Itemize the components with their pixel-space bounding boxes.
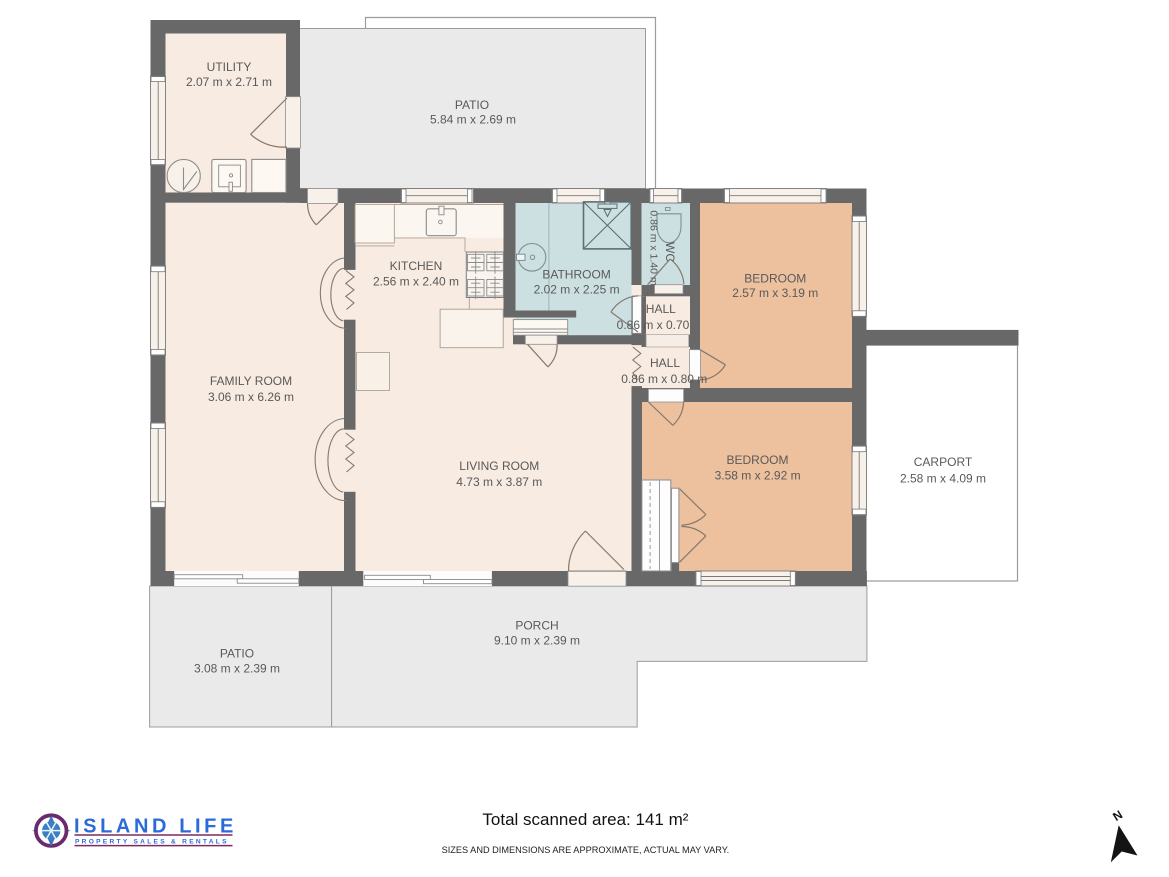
svg-text:LIVING ROOM: LIVING ROOM bbox=[459, 459, 539, 473]
svg-text:0.86 m x 0.70: 0.86 m x 0.70 bbox=[617, 318, 690, 332]
svg-text:2.57 m x 3.19 m: 2.57 m x 3.19 m bbox=[732, 286, 818, 300]
svg-text:HALL: HALL bbox=[650, 356, 680, 370]
svg-text:3.58 m x 2.92 m: 3.58 m x 2.92 m bbox=[715, 469, 801, 483]
svg-text:0.86 m x 0.80 m: 0.86 m x 0.80 m bbox=[621, 372, 707, 386]
svg-text:2.56 m x 2.40 m: 2.56 m x 2.40 m bbox=[373, 275, 459, 289]
svg-text:5.84 m x 2.69 m: 5.84 m x 2.69 m bbox=[430, 113, 516, 127]
svg-text:2.07 m x 2.71 m: 2.07 m x 2.71 m bbox=[186, 75, 272, 89]
svg-text:WC: WC bbox=[663, 242, 677, 262]
svg-text:PROPERTY SALES & RENTALS: PROPERTY SALES & RENTALS bbox=[75, 838, 229, 845]
svg-text:2.58 m x 4.09 m: 2.58 m x 4.09 m bbox=[900, 472, 986, 486]
svg-text:PATIO: PATIO bbox=[220, 647, 254, 661]
svg-text:SIZES AND DIMENSIONS ARE APPRO: SIZES AND DIMENSIONS ARE APPROXIMATE, AC… bbox=[442, 845, 730, 855]
svg-text:HALL: HALL bbox=[646, 302, 676, 316]
svg-text:4.73 m x 3.87 m: 4.73 m x 3.87 m bbox=[456, 475, 542, 489]
svg-text:KITCHEN: KITCHEN bbox=[390, 259, 443, 273]
svg-text:UTILITY: UTILITY bbox=[207, 60, 252, 74]
svg-text:2.02 m x 2.25 m: 2.02 m x 2.25 m bbox=[534, 282, 620, 296]
svg-text:BEDROOM: BEDROOM bbox=[726, 453, 788, 467]
svg-text:3.08 m x 2.39 m: 3.08 m x 2.39 m bbox=[194, 662, 280, 676]
svg-text:0.86 m x 1.40 m: 0.86 m x 1.40 m bbox=[648, 210, 660, 286]
svg-text:PORCH: PORCH bbox=[515, 619, 558, 633]
svg-text:ISLAND LIFE: ISLAND LIFE bbox=[74, 816, 237, 838]
svg-text:9.10 m x 2.39 m: 9.10 m x 2.39 m bbox=[494, 634, 580, 648]
svg-text:Total scanned area: 141 m²: Total scanned area: 141 m² bbox=[482, 810, 688, 829]
svg-text:FAMILY ROOM: FAMILY ROOM bbox=[210, 374, 292, 388]
svg-text:PATIO: PATIO bbox=[455, 98, 489, 112]
svg-text:CARPORT: CARPORT bbox=[914, 455, 973, 469]
svg-text:3.06 m x 6.26 m: 3.06 m x 6.26 m bbox=[208, 390, 294, 404]
svg-text:BEDROOM: BEDROOM bbox=[744, 272, 806, 286]
svg-text:BATHROOM: BATHROOM bbox=[542, 268, 610, 282]
